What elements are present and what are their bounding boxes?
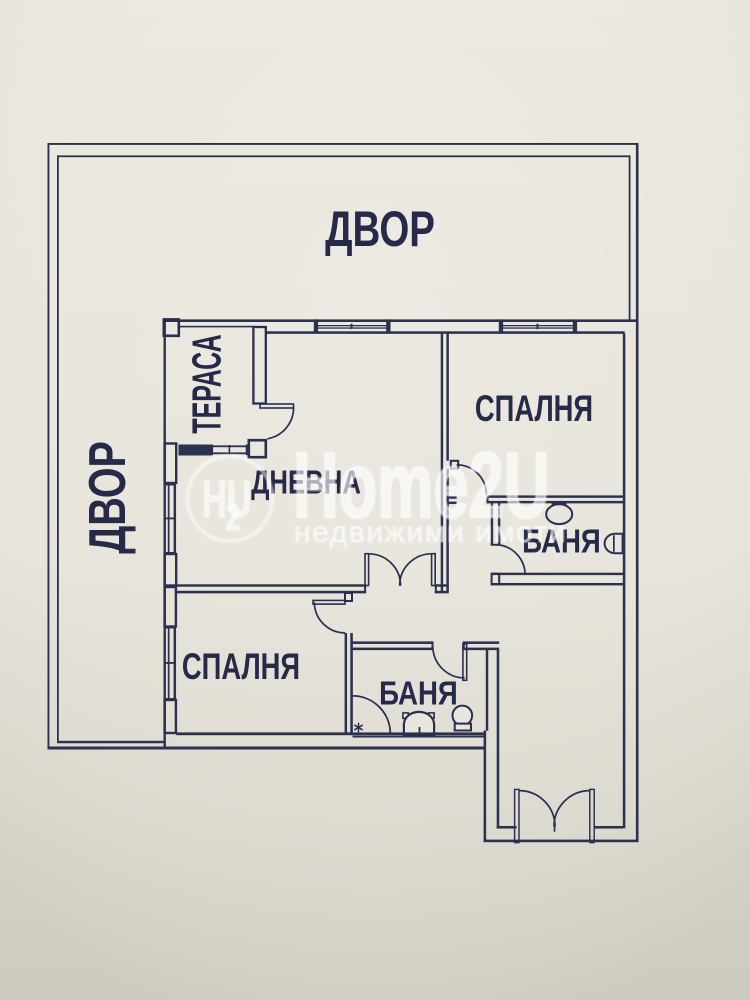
svg-text:2: 2 [226,496,240,538]
svg-text:ДВОР: ДВОР [78,441,137,554]
svg-text:ТЕРАСА: ТЕРАСА [184,334,230,433]
svg-text:ДВОР: ДВОР [325,202,435,257]
svg-text:СПАЛНЯ: СПАЛНЯ [475,388,593,429]
svg-text:СПАЛНЯ: СПАЛНЯ [182,646,300,687]
svg-text:БАНЯ: БАНЯ [379,675,458,712]
svg-text:недвижими имоти: недвижими имоти [294,516,567,549]
